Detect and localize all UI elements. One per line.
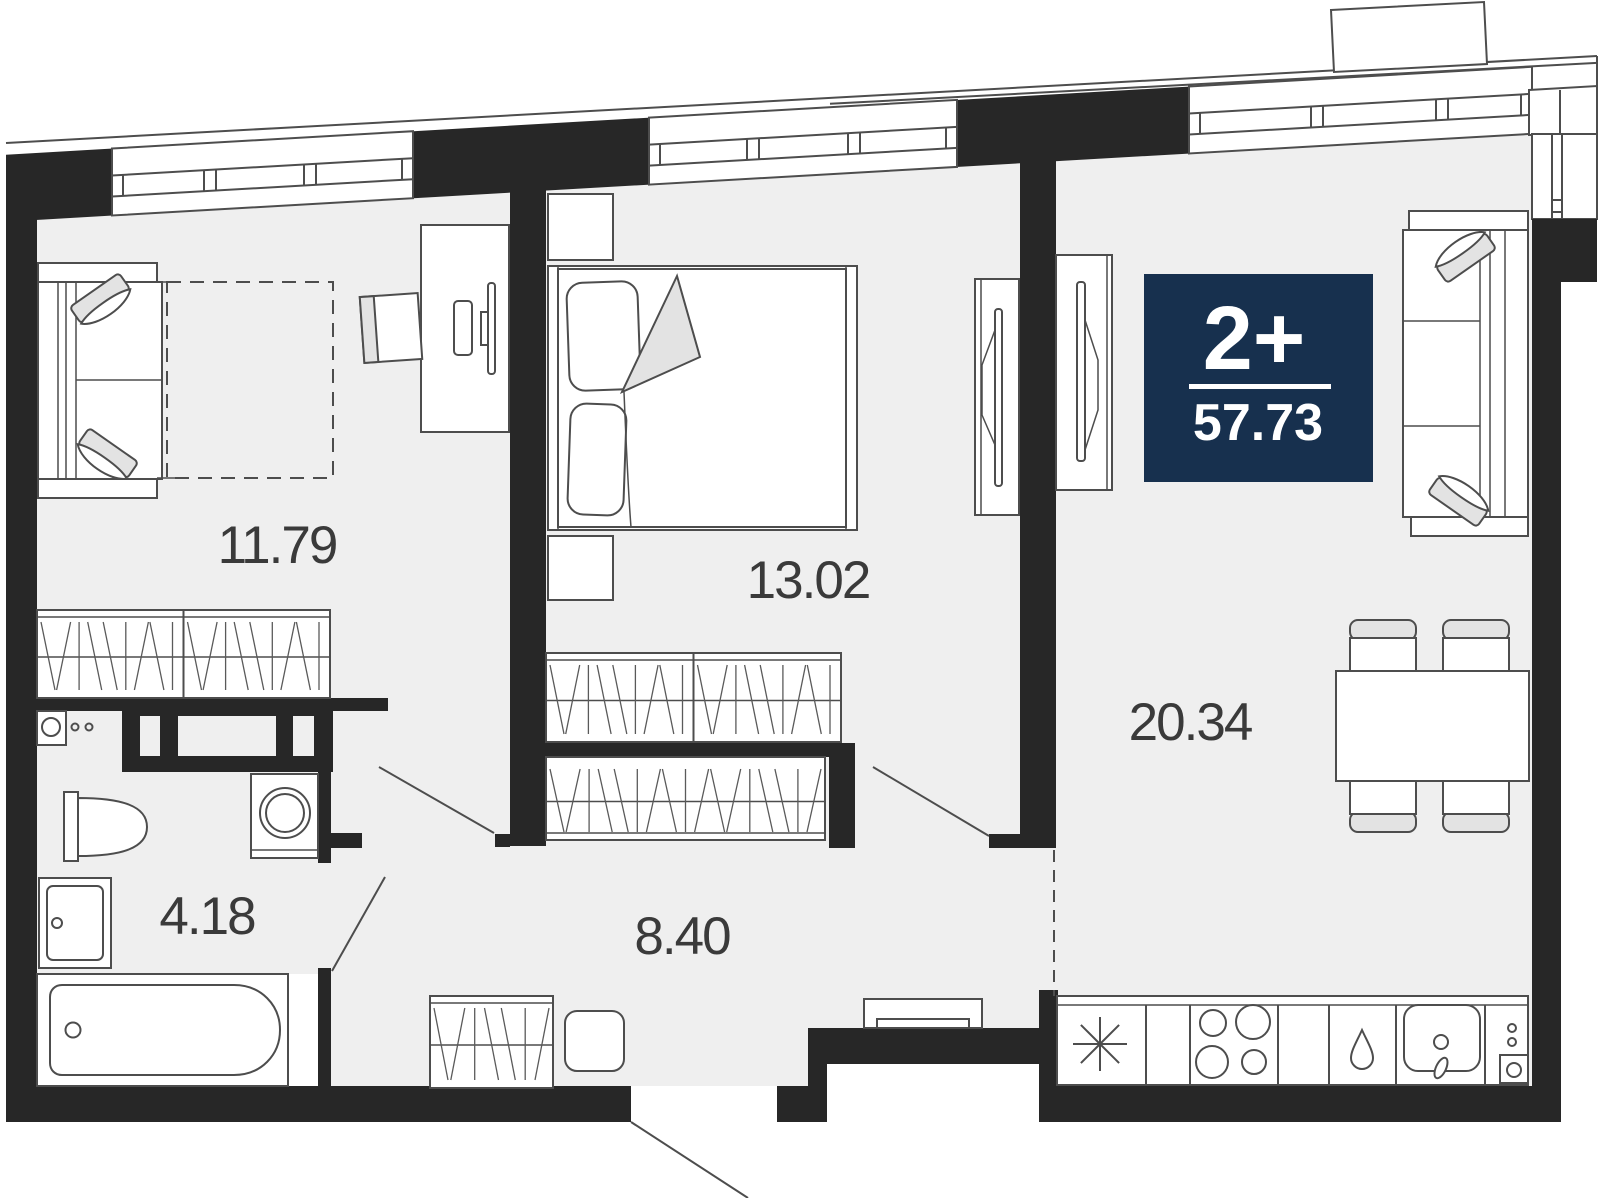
- svg-text:8.40: 8.40: [634, 907, 730, 966]
- svg-text:20.34: 20.34: [1129, 693, 1252, 752]
- svg-text:4.18: 4.18: [159, 887, 255, 946]
- svg-text:2+: 2+: [1203, 289, 1306, 389]
- svg-text:11.79: 11.79: [218, 516, 337, 575]
- svg-text:13.02: 13.02: [747, 551, 870, 610]
- svg-text:57.73: 57.73: [1193, 394, 1323, 452]
